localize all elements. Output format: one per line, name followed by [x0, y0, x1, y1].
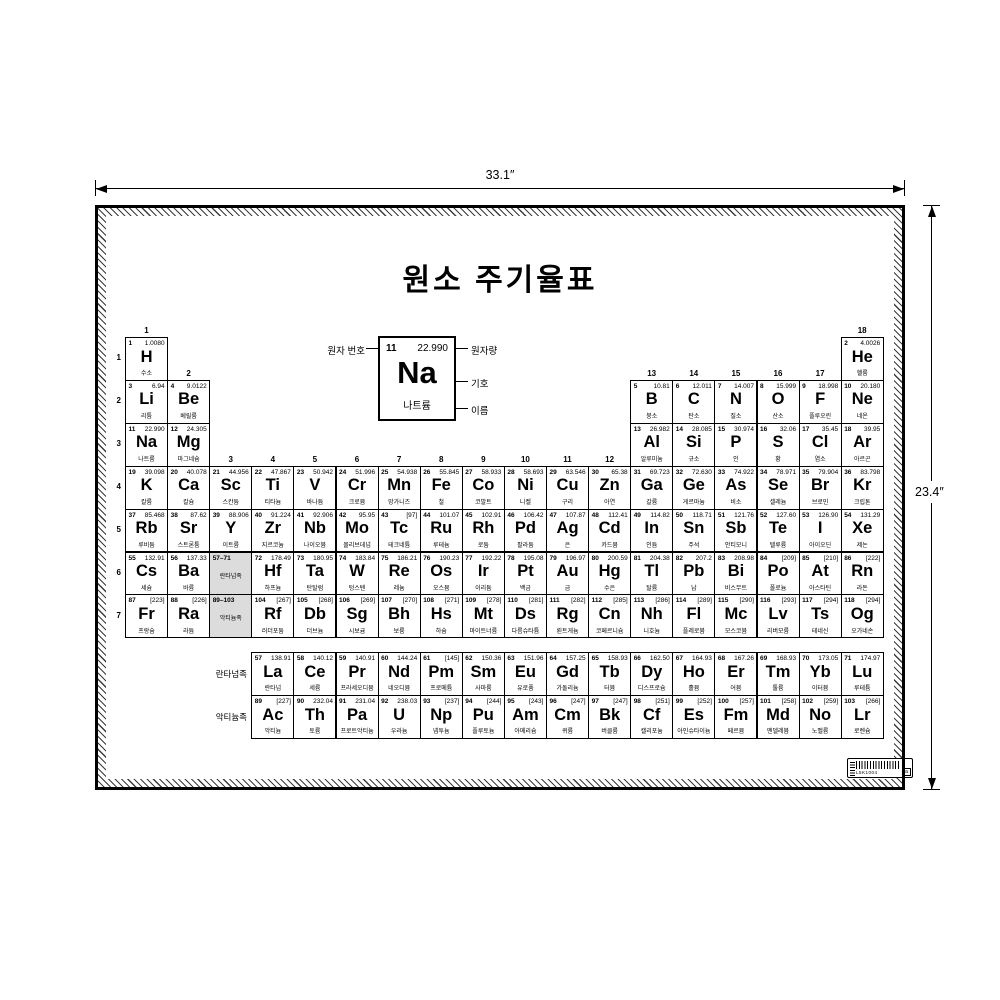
- element-name: 하프늄: [252, 583, 293, 592]
- atomic-mass: 50.942: [313, 469, 333, 476]
- element-symbol: Ar: [842, 433, 883, 452]
- atomic-number: 11: [129, 426, 136, 433]
- element-symbol: Hg: [589, 562, 630, 581]
- element-name: 팔라듐: [505, 540, 546, 549]
- barcode-icon: [856, 761, 901, 769]
- element-symbol: Mo: [337, 519, 378, 538]
- element-cell-Ac: 89[227]Ac악티늄: [251, 695, 294, 739]
- callout-line: [456, 348, 468, 349]
- legend-name-label: 이름: [471, 403, 488, 417]
- atomic-number: 64: [550, 655, 557, 662]
- atomic-number: 107: [381, 597, 392, 604]
- element-symbol: La: [252, 663, 293, 682]
- element-symbol: Na: [126, 433, 167, 452]
- element-symbol: Er: [715, 663, 756, 682]
- element-name: 프라세오디뮴: [337, 683, 378, 692]
- atomic-number: 35: [802, 469, 809, 476]
- atomic-mass: 183.84: [355, 555, 375, 562]
- atomic-mass: [282]: [571, 597, 585, 604]
- element-cell-B: 510.81B붕소: [630, 380, 673, 424]
- atomic-mass: 114.82: [650, 512, 669, 519]
- element-name: 은: [547, 540, 588, 549]
- atomic-mass: 91.224: [271, 512, 291, 519]
- element-cell-H: 11.0080H수소: [125, 337, 168, 381]
- atomic-mass: [266]: [866, 698, 880, 705]
- element-symbol: Tb: [589, 663, 630, 682]
- element-name: 아메리슘: [505, 726, 546, 735]
- atomic-number: 43: [381, 512, 388, 519]
- element-name: 버클륨: [589, 726, 630, 735]
- element-cell-Tc: 43[97]Tc테크네튬: [378, 509, 421, 553]
- element-cell-Rh: 45102.91Rh로듐: [462, 509, 505, 553]
- legend-box: 11 22.990 Na 나트륨: [378, 336, 456, 421]
- element-name: 홀뮴: [673, 683, 714, 692]
- element-symbol: Gd: [547, 663, 588, 682]
- atomic-number: 4: [171, 383, 175, 390]
- element-symbol: Be: [168, 390, 209, 409]
- element-symbol: Es: [673, 706, 714, 725]
- atomic-mass: 180.95: [313, 555, 333, 562]
- element-symbol: Cu: [547, 476, 588, 495]
- atomic-mass: 121.76: [734, 512, 754, 519]
- series-placeholder-cell: 89–103악티늄족: [209, 594, 252, 638]
- element-name: 지르코늄: [252, 540, 293, 549]
- element-name: 아인슈타이늄: [673, 726, 714, 735]
- periodic-table: 11.0080H수소24.0026He헬륨36.94Li리튬49.0122Be베…: [95, 205, 905, 790]
- atomic-mass: 195.08: [524, 555, 544, 562]
- period-label-7: 7: [109, 611, 121, 620]
- atomic-number: 63: [507, 655, 514, 662]
- element-symbol: Ba: [168, 562, 209, 581]
- element-cell-Li: 36.94Li리튬: [125, 380, 168, 424]
- element-name: 붕소: [631, 411, 672, 420]
- atomic-number: 36: [844, 469, 851, 476]
- group-label-16: 16: [757, 369, 800, 378]
- atomic-number: 105: [297, 597, 308, 604]
- element-cell-Np: 93[237]Np넵투늄: [420, 695, 463, 739]
- element-name: 탄소: [673, 411, 714, 420]
- atomic-mass: 72.630: [692, 469, 712, 476]
- element-name: 질소: [715, 411, 756, 420]
- group-label-18: 18: [841, 326, 884, 335]
- element-symbol: Ge: [673, 476, 714, 495]
- element-symbol: Sb: [715, 519, 756, 538]
- atomic-number: 40: [255, 512, 262, 519]
- group-label-7: 7: [378, 455, 421, 464]
- element-symbol: Cf: [631, 706, 672, 725]
- element-name: 로듐: [463, 540, 504, 549]
- element-cell-Re: 75186.21Re레늄: [378, 552, 421, 596]
- atomic-mass: 4.0026: [860, 340, 880, 347]
- atomic-number: 17: [802, 426, 809, 433]
- atomic-mass: 51.996: [355, 469, 375, 476]
- atomic-number: 59: [339, 655, 346, 662]
- atomic-number: 28: [507, 469, 514, 476]
- atomic-mass: [268]: [319, 597, 333, 604]
- element-symbol: Th: [294, 706, 335, 725]
- element-cell-K: 1939.098K칼륨: [125, 466, 168, 510]
- atomic-mass: 58.693: [524, 469, 544, 476]
- atomic-number: 49: [634, 512, 641, 519]
- element-name: 하슘: [421, 626, 462, 635]
- element-cell-Tm: 69168.93Tm툴륨: [757, 652, 800, 696]
- element-cell-Ru: 44101.07Ru루테늄: [420, 509, 463, 553]
- atomic-mass: 14.007: [734, 383, 754, 390]
- element-symbol: Tm: [758, 663, 799, 682]
- element-cell-Pr: 59140.91Pr프라세오디뮴: [336, 652, 379, 696]
- atomic-mass: 6.94: [152, 383, 165, 390]
- element-symbol: Bh: [379, 605, 420, 624]
- atomic-mass: 144.24: [397, 655, 417, 662]
- element-cell-Zr: 4091.224Zr지르코늄: [251, 509, 294, 553]
- element-symbol: Rh: [463, 519, 504, 538]
- element-name: 레늄: [379, 583, 420, 592]
- atomic-number: 14: [676, 426, 683, 433]
- element-name: 티타늄: [252, 497, 293, 506]
- element-cell-Rb: 3785.468Rb루비듐: [125, 509, 168, 553]
- atomic-mass: 207.2: [696, 555, 712, 562]
- element-symbol: P: [715, 433, 756, 452]
- arrow-right-icon: [893, 185, 904, 193]
- atomic-mass: 74.922: [734, 469, 754, 476]
- element-symbol: Pa: [337, 706, 378, 725]
- element-symbol: H: [126, 348, 167, 367]
- atomic-number: 15: [718, 426, 725, 433]
- atomic-mass: [223]: [150, 597, 164, 604]
- element-symbol: Fl: [673, 605, 714, 624]
- atomic-mass: 24.305: [187, 426, 207, 433]
- element-cell-Nh: 113[286]Nh니호늄: [630, 594, 673, 638]
- legend-name: 나트륨: [380, 397, 454, 412]
- element-name: 납: [673, 583, 714, 592]
- atomic-number: 103: [844, 698, 855, 705]
- element-symbol: Pd: [505, 519, 546, 538]
- atomic-number: 108: [423, 597, 434, 604]
- group-label-10: 10: [504, 455, 547, 464]
- element-symbol: Ga: [631, 476, 672, 495]
- element-cell-W: 74183.84W텅스텐: [336, 552, 379, 596]
- element-name: 루비듐: [126, 540, 167, 549]
- atomic-number: 19: [129, 469, 136, 476]
- element-cell-Cs: 55132.91Cs세슘: [125, 552, 168, 596]
- element-name: 구리: [547, 497, 588, 506]
- atomic-mass: 112.41: [608, 512, 627, 519]
- element-symbol: Cm: [547, 706, 588, 725]
- element-cell-Rn: 86[222]Rn라돈: [841, 552, 884, 596]
- element-cell-Tb: 65158.93Tb터븀: [588, 652, 631, 696]
- atomic-mass: [294]: [824, 597, 838, 604]
- atomic-mass: [145]: [445, 655, 459, 662]
- element-name: 나이오븀: [294, 540, 335, 549]
- atomic-mass: 44.956: [229, 469, 249, 476]
- atomic-mass: 83.798: [860, 469, 880, 476]
- element-name: 수소: [126, 368, 167, 377]
- legend-atomic-number: 11: [386, 343, 397, 354]
- group-label-4: 4: [251, 455, 294, 464]
- element-symbol: Te: [758, 519, 799, 538]
- atomic-mass: [252]: [697, 698, 711, 705]
- atomic-mass: [247]: [613, 698, 627, 705]
- atomic-number: 73: [297, 555, 304, 562]
- element-symbol: Xe: [842, 519, 883, 538]
- element-name: 멘델레븀: [758, 726, 799, 735]
- atomic-number: 38: [171, 512, 178, 519]
- group-label-8: 8: [420, 455, 463, 464]
- element-name: 시보귬: [337, 626, 378, 635]
- atomic-mass: [209]: [782, 555, 796, 562]
- element-cell-Pd: 46106.42Pd팔라듐: [504, 509, 547, 553]
- element-name: 인듐: [631, 540, 672, 549]
- atomic-mass: 26.982: [650, 426, 670, 433]
- element-cell-Pb: 82207.2Pb납: [672, 552, 715, 596]
- group-label-15: 15: [714, 369, 757, 378]
- element-cell-Ga: 3169.723Ga갈륨: [630, 466, 673, 510]
- arrow-down-icon: [928, 778, 936, 789]
- period-label-5: 5: [109, 525, 121, 534]
- element-name: 이터븀: [800, 683, 841, 692]
- atomic-number: 10: [844, 383, 851, 390]
- atomic-mass: 40.078: [187, 469, 207, 476]
- element-symbol: Ne: [842, 390, 883, 409]
- group-label-14: 14: [672, 369, 715, 378]
- atomic-number: 88: [171, 597, 178, 604]
- atomic-number: 67: [676, 655, 683, 662]
- atomic-number: 72: [255, 555, 262, 562]
- element-cell-S: 1632.06S황: [757, 423, 800, 467]
- element-cell-Fm: 100[257]Fm페르뮴: [714, 695, 757, 739]
- element-name: 토륨: [294, 726, 335, 735]
- element-name: 망가니즈: [379, 497, 420, 506]
- atomic-number: 21: [213, 469, 220, 476]
- element-cell-Mn: 2554.938Mn망가니즈: [378, 466, 421, 510]
- group-label-9: 9: [462, 455, 505, 464]
- atomic-mass: 78.971: [776, 469, 796, 476]
- element-name: 프로메튬: [421, 683, 462, 692]
- element-cell-Sm: 62150.36Sm사마륨: [462, 652, 505, 696]
- element-symbol: Db: [294, 605, 335, 624]
- atomic-number: 1: [129, 340, 133, 347]
- atomic-mass: 85.468: [145, 512, 165, 519]
- atomic-mass: 1.0080: [145, 340, 165, 347]
- element-name: 악티늄: [252, 726, 293, 735]
- atomic-mass: 107.87: [566, 512, 586, 519]
- element-symbol: W: [337, 562, 378, 581]
- element-symbol: Po: [758, 562, 799, 581]
- element-name: 코발트: [463, 497, 504, 506]
- element-symbol: Ce: [294, 663, 335, 682]
- atomic-mass: [227]: [276, 698, 290, 705]
- callout-line: [366, 348, 378, 349]
- element-cell-Yb: 70173.05Yb이터븀: [799, 652, 842, 696]
- element-cell-Er: 68167.26Er어븀: [714, 652, 757, 696]
- element-cell-Bh: 107[270]Bh보륨: [378, 594, 421, 638]
- element-name: 다름슈타튬: [505, 626, 546, 635]
- atomic-number: 24: [339, 469, 346, 476]
- atomic-mass: 232.04: [313, 698, 333, 705]
- atomic-mass: 192.22: [482, 555, 502, 562]
- atomic-number: 74: [339, 555, 346, 562]
- element-name: 프로트악티늄: [337, 726, 378, 735]
- element-cell-Eu: 63151.96Eu유로퓸: [504, 652, 547, 696]
- barcode-box-letter: a: [903, 768, 911, 776]
- element-symbol: Sr: [168, 519, 209, 538]
- element-name: 알루미늄: [631, 454, 672, 463]
- barcode-side-text: [850, 761, 855, 776]
- atomic-mass: 10.81: [654, 383, 670, 390]
- element-cell-At: 85[210]At아스타틴: [799, 552, 842, 596]
- element-name: 스칸듐: [210, 497, 251, 506]
- element-symbol: Br: [800, 476, 841, 495]
- atomic-number: 45: [465, 512, 472, 519]
- dimension-height-label: 23.4″: [915, 481, 944, 503]
- element-symbol: Zn: [589, 476, 630, 495]
- element-cell-Rg: 111[282]Rg뢴트게늄: [546, 594, 589, 638]
- atomic-number: 106: [339, 597, 350, 604]
- atomic-number: 60: [381, 655, 388, 662]
- atomic-number: 69: [760, 655, 767, 662]
- atomic-mass: 92.906: [313, 512, 333, 519]
- atomic-number: 116: [760, 597, 771, 604]
- atomic-mass: 88.906: [229, 512, 249, 519]
- element-symbol: Pu: [463, 706, 504, 725]
- element-cell-Ni: 2858.693Ni니켈: [504, 466, 547, 510]
- element-name: 모스코븀: [715, 626, 756, 635]
- series-range: 57–71: [213, 555, 231, 562]
- element-name: 안티모니: [715, 540, 756, 549]
- element-name: 리버모륨: [758, 626, 799, 635]
- element-cell-O: 815.999O산소: [757, 380, 800, 424]
- element-cell-Cm: 96[247]Cm퀴륨: [546, 695, 589, 739]
- element-cell-F: 918.998F플루오린: [799, 380, 842, 424]
- atomic-number: 39: [213, 512, 220, 519]
- atomic-mass: 15.999: [776, 383, 796, 390]
- element-cell-Lu: 71174.97Lu루테튬: [841, 652, 884, 696]
- legend-atomic-mass-label: 원자량: [471, 343, 497, 357]
- element-symbol: He: [842, 348, 883, 367]
- element-symbol: Sg: [337, 605, 378, 624]
- atomic-number: 101: [760, 698, 771, 705]
- element-name: 아스타틴: [800, 583, 841, 592]
- element-name: 탈륨: [631, 583, 672, 592]
- element-cell-Md: 101[258]Md멘델레븀: [757, 695, 800, 739]
- element-name: 갈륨: [631, 497, 672, 506]
- atomic-number: 87: [129, 597, 136, 604]
- element-symbol: Ta: [294, 562, 335, 581]
- element-symbol: Lv: [758, 605, 799, 624]
- element-name: 니켈: [505, 497, 546, 506]
- element-name: 인: [715, 454, 756, 463]
- element-symbol: I: [800, 519, 841, 538]
- atomic-mass: 35.45: [822, 426, 838, 433]
- element-name: 라듐: [168, 626, 209, 635]
- atomic-number: 20: [171, 469, 178, 476]
- element-cell-Fe: 2655.845Fe철: [420, 466, 463, 510]
- element-name: 오스뮴: [421, 583, 462, 592]
- callout-line: [456, 381, 468, 382]
- element-symbol: Au: [547, 562, 588, 581]
- element-cell-U: 92238.03U우라늄: [378, 695, 421, 739]
- atomic-mass: 140.91: [355, 655, 375, 662]
- element-symbol: Mt: [463, 605, 504, 624]
- period-label-3: 3: [109, 439, 121, 448]
- atomic-number: 42: [339, 512, 346, 519]
- element-name: 터븀: [589, 683, 630, 692]
- atomic-number: 94: [465, 698, 472, 705]
- element-symbol: Am: [505, 706, 546, 725]
- element-name: 베릴륨: [168, 411, 209, 420]
- element-cell-Pm: 61[145]Pm프로메튬: [420, 652, 463, 696]
- atomic-mass: 87.62: [190, 512, 206, 519]
- atomic-number: 9: [802, 383, 806, 390]
- atomic-mass: 102.91: [482, 512, 502, 519]
- atomic-number: 48: [592, 512, 599, 519]
- element-name: 오가네손: [842, 626, 883, 635]
- element-cell-Ge: 3272.630Ge게르마늄: [672, 466, 715, 510]
- element-symbol: Fe: [421, 476, 462, 495]
- arrow-left-icon: [96, 185, 107, 193]
- atomic-number: 41: [297, 512, 304, 519]
- element-symbol: No: [800, 706, 841, 725]
- atomic-mass: 54.938: [397, 469, 417, 476]
- atomic-number: 62: [465, 655, 472, 662]
- atomic-number: 46: [507, 512, 514, 519]
- atomic-number: 117: [802, 597, 813, 604]
- atomic-mass: 167.26: [734, 655, 754, 662]
- element-name: 금: [547, 583, 588, 592]
- element-name: 백금: [505, 583, 546, 592]
- element-cell-Mo: 4295.95Mo몰리브데넘: [336, 509, 379, 553]
- atomic-mass: 151.96: [524, 655, 544, 662]
- element-symbol: Sn: [673, 519, 714, 538]
- atomic-mass: 150.36: [482, 655, 502, 662]
- atomic-mass: 30.974: [734, 426, 754, 433]
- atomic-mass: 238.03: [397, 698, 417, 705]
- element-cell-Y: 3988.906Y이트륨: [209, 509, 252, 553]
- atomic-mass: [259]: [824, 698, 838, 705]
- atomic-mass: 138.91: [271, 655, 291, 662]
- element-cell-Ts: 117[294]Ts테네신: [799, 594, 842, 638]
- element-symbol: Ti: [252, 476, 293, 495]
- element-cell-Po: 84[209]Po폴로늄: [757, 552, 800, 596]
- element-name: 텔루륨: [758, 540, 799, 549]
- atomic-mass: 190.23: [439, 555, 459, 562]
- element-name: 제논: [842, 540, 883, 549]
- element-cell-Og: 118[294]Og오가네손: [841, 594, 884, 638]
- element-cell-Ce: 58140.12Ce세륨: [293, 652, 336, 696]
- atomic-mass: [278]: [487, 597, 501, 604]
- element-symbol: S: [758, 433, 799, 452]
- element-name: 니호늄: [631, 626, 672, 635]
- element-cell-Ti: 2247.867Ti티타늄: [251, 466, 294, 510]
- element-cell-Na: 1122.990Na나트륨: [125, 423, 168, 467]
- atomic-number: 34: [760, 469, 767, 476]
- element-cell-Fl: 114[289]Fl플레로븀: [672, 594, 715, 638]
- atomic-number: 27: [465, 469, 472, 476]
- element-symbol: Md: [758, 706, 799, 725]
- atomic-mass: [293]: [782, 597, 796, 604]
- element-name: 셀레늄: [758, 497, 799, 506]
- element-symbol: Cs: [126, 562, 167, 581]
- element-cell-In: 49114.82In인듐: [630, 509, 673, 553]
- atomic-mass: 9.0122: [187, 383, 207, 390]
- group-label-2: 2: [167, 369, 210, 378]
- atomic-mass: [290]: [740, 597, 754, 604]
- atomic-mass: 63.546: [566, 469, 586, 476]
- element-symbol: Mg: [168, 433, 209, 452]
- atomic-number: 115: [718, 597, 729, 604]
- atomic-mass: [281]: [529, 597, 543, 604]
- period-label-4: 4: [109, 482, 121, 491]
